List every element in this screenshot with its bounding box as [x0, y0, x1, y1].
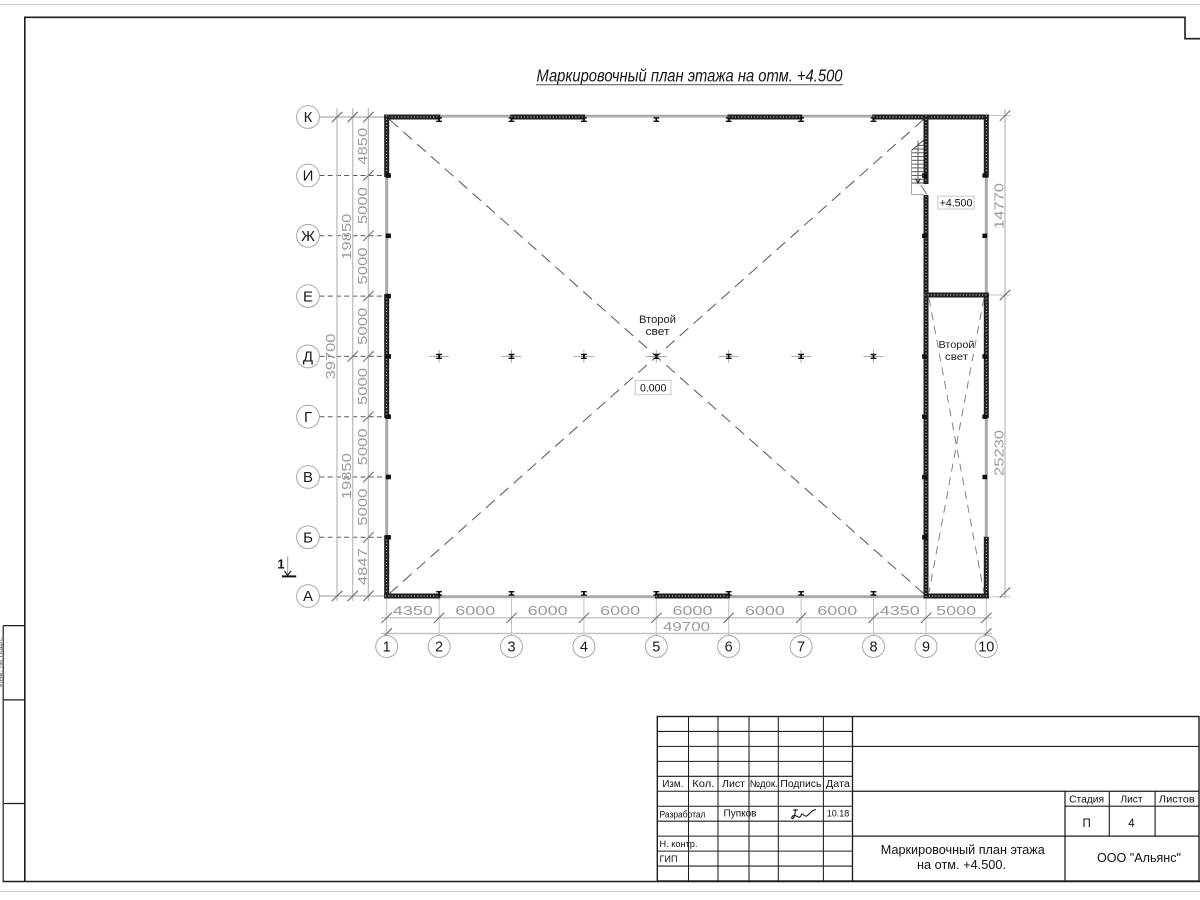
svg-text:5000: 5000	[355, 308, 370, 345]
svg-text:4850: 4850	[355, 128, 370, 165]
svg-text:7: 7	[797, 640, 805, 656]
svg-text:Второй: Второй	[939, 340, 975, 351]
svg-text:Лист: Лист	[1121, 794, 1143, 805]
svg-text:свет: свет	[945, 352, 968, 363]
svg-text:Е: Е	[303, 288, 313, 305]
svg-text:В: В	[303, 469, 313, 486]
svg-text:4: 4	[580, 640, 588, 656]
svg-text:Пупков: Пупков	[724, 809, 757, 820]
svg-text:4350: 4350	[880, 603, 920, 618]
svg-text:5000: 5000	[355, 368, 370, 405]
svg-text:П: П	[1082, 818, 1090, 830]
svg-text:5000: 5000	[936, 603, 976, 618]
svg-text:25230: 25230	[992, 430, 1007, 476]
svg-text:Инв. № подл.: Инв. № подл.	[0, 637, 4, 687]
svg-text:Дата: Дата	[826, 779, 851, 790]
svg-text:9: 9	[922, 640, 930, 656]
svg-text:10: 10	[978, 640, 994, 656]
svg-text:Н. контр.: Н. контр.	[660, 839, 698, 849]
svg-text:19850: 19850	[339, 214, 354, 260]
svg-text:Б: Б	[303, 530, 313, 547]
svg-text:1: 1	[383, 640, 391, 656]
svg-text:6000: 6000	[673, 603, 713, 618]
svg-text:Маркировочный план этажа на от: Маркировочный план этажа на отм. +4.500	[537, 66, 843, 86]
svg-text:5000: 5000	[355, 247, 370, 284]
svg-text:5000: 5000	[355, 489, 370, 526]
svg-text:5000: 5000	[355, 187, 370, 224]
svg-text:3: 3	[507, 640, 515, 656]
svg-text:Изм.: Изм.	[662, 779, 683, 790]
svg-text:0.000: 0.000	[640, 382, 667, 394]
svg-text:6000: 6000	[455, 603, 495, 618]
svg-text:4350: 4350	[393, 603, 433, 618]
svg-text:Кол.: Кол.	[692, 779, 714, 790]
svg-text:8: 8	[869, 640, 877, 656]
svg-text:свет: свет	[646, 326, 670, 338]
svg-text:ГИП: ГИП	[660, 854, 678, 864]
svg-text:49700: 49700	[663, 619, 710, 634]
svg-text:Второй: Второй	[639, 314, 676, 326]
svg-text:19850: 19850	[339, 453, 354, 499]
svg-text:4: 4	[1128, 818, 1135, 830]
svg-text:6000: 6000	[745, 603, 785, 618]
svg-text:1: 1	[277, 557, 284, 572]
svg-text:5000: 5000	[355, 428, 370, 465]
svg-text:Разработал: Разработал	[660, 810, 706, 820]
svg-text:+4.500: +4.500	[940, 197, 973, 209]
svg-text:6: 6	[725, 640, 733, 656]
svg-text:Ж: Ж	[301, 228, 315, 245]
svg-text:39700: 39700	[323, 334, 338, 380]
svg-text:6000: 6000	[528, 603, 568, 618]
svg-text:№док.: №док.	[750, 779, 778, 790]
svg-text:Листов: Листов	[1159, 794, 1195, 805]
svg-text:5: 5	[652, 640, 660, 656]
svg-text:Подпись: Подпись	[780, 779, 821, 790]
svg-text:6000: 6000	[817, 603, 857, 618]
svg-text:К: К	[304, 109, 313, 126]
svg-text:И: И	[303, 168, 314, 185]
svg-text:Стадия: Стадия	[1069, 794, 1104, 805]
svg-text:10.18: 10.18	[827, 809, 850, 819]
svg-text:6000: 6000	[600, 603, 640, 618]
svg-text:А: А	[303, 588, 313, 605]
svg-text:Маркировочный план этажа: Маркировочный план этажа	[881, 842, 1046, 857]
svg-text:Д: Д	[303, 349, 313, 366]
svg-text:4847: 4847	[355, 548, 370, 585]
svg-text:14770: 14770	[992, 183, 1007, 229]
svg-text:ООО "Альянс": ООО "Альянс"	[1097, 851, 1181, 865]
svg-text:2: 2	[435, 640, 443, 656]
svg-text:на отм. +4.500.: на отм. +4.500.	[917, 857, 1006, 872]
svg-text:Г: Г	[304, 409, 312, 426]
svg-text:Лист: Лист	[722, 779, 746, 790]
